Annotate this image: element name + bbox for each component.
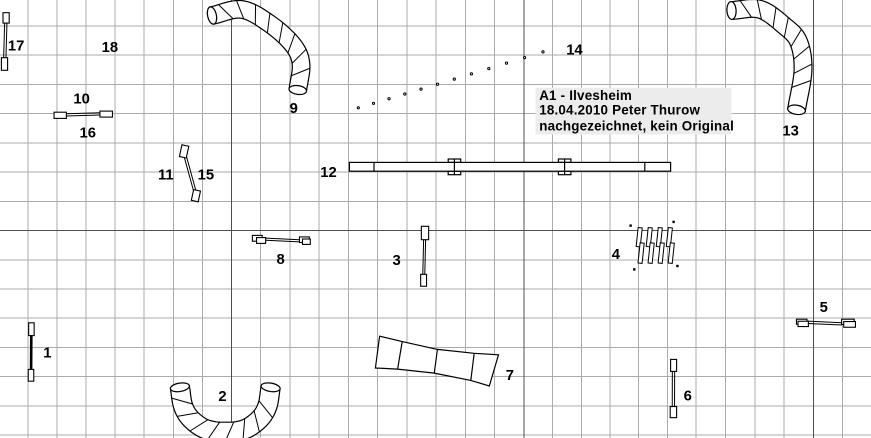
svg-text:8: 8 xyxy=(277,252,285,268)
svg-text:4: 4 xyxy=(612,247,621,263)
svg-text:16: 16 xyxy=(80,125,96,141)
svg-text:14: 14 xyxy=(566,43,583,59)
svg-text:nachgezeichnet, kein Original: nachgezeichnet, kein Original xyxy=(539,119,734,134)
svg-text:18.04.2010 Peter Thurow: 18.04.2010 Peter Thurow xyxy=(539,103,700,118)
svg-text:9: 9 xyxy=(290,101,298,117)
svg-text:17: 17 xyxy=(8,38,24,54)
svg-text:15: 15 xyxy=(198,167,214,183)
svg-text:6: 6 xyxy=(684,388,692,404)
svg-text:18: 18 xyxy=(102,40,118,56)
svg-text:13: 13 xyxy=(782,124,798,140)
svg-text:1: 1 xyxy=(43,345,51,361)
svg-text:7: 7 xyxy=(506,368,514,384)
svg-text:5: 5 xyxy=(820,300,828,316)
svg-text:3: 3 xyxy=(393,253,401,269)
svg-text:12: 12 xyxy=(320,165,336,181)
svg-text:2: 2 xyxy=(218,389,226,405)
svg-text:10: 10 xyxy=(73,92,89,108)
svg-text:11: 11 xyxy=(158,167,174,183)
svg-text:A1 - Ilvesheim: A1 - Ilvesheim xyxy=(539,88,632,103)
